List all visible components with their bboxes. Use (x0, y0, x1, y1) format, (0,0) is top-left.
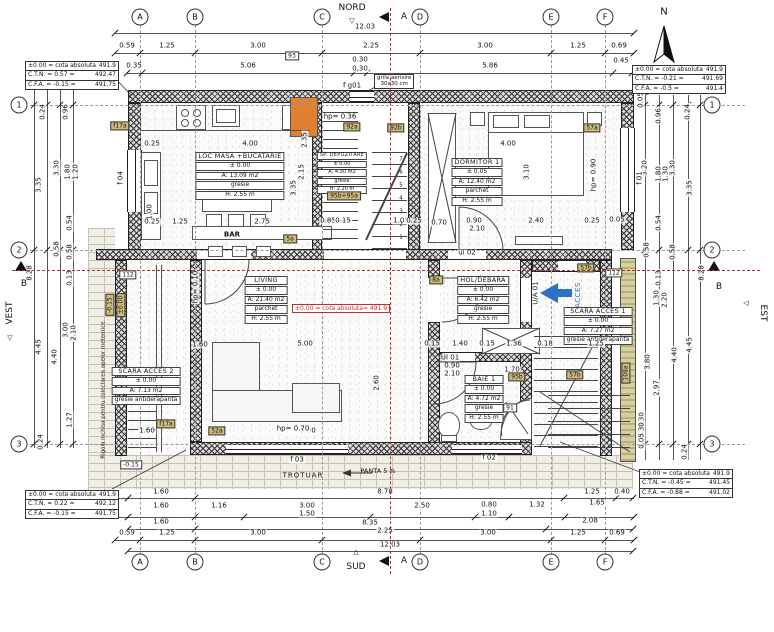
room-finish: gresie (457, 305, 509, 314)
room-height: H: 2.55 m (452, 197, 503, 206)
level-value: 491.45 (709, 479, 730, 487)
rigola-note: Rigola inchisa pentru colectarea apelor … (101, 320, 107, 459)
room-level: ± 0.00 (112, 377, 181, 386)
level-key: C.T.N. = -0.45 = (642, 479, 691, 487)
east-label: EST (758, 305, 768, 322)
red-level-note: ±0.00 = cota absoluta= 491.9 (292, 304, 390, 313)
grid-line-3 (30, 444, 745, 445)
level-value: 491.75 (95, 510, 116, 518)
room-label-storage: SP. DEPOZITARE ± 0.00 A: 4.30 m2 gresie … (317, 152, 367, 194)
room-height: H: 2.55 m (465, 414, 504, 423)
room-height: H: 2.55 m (457, 315, 509, 324)
room-name: SCARA ACCES 1 (564, 307, 633, 316)
dim-line (34, 88, 35, 448)
room-name: SCARA ACCES 2 (112, 367, 181, 376)
level-value: 491.9 (706, 66, 723, 74)
south-label: SUD (346, 562, 365, 572)
room-level: ± 0.00 (317, 161, 367, 169)
dim-line (645, 95, 646, 460)
south-triangle-icon: △ (353, 548, 358, 556)
grila-note: grila aerisire 30x30 cm (374, 74, 414, 89)
dim-line (700, 95, 701, 460)
room-height: H: 2.55 m (195, 191, 284, 200)
room-finish: gresie antiderapanta (112, 396, 181, 405)
room-label-kitchen: LOC MASA +BUCATARIE ± 0.00 A: 13.09 m2 g… (195, 152, 284, 200)
north-triangle-icon: ▽ (349, 17, 354, 25)
acces-arrow-tail (557, 289, 572, 297)
section-a-label-bottom: A (401, 556, 407, 566)
level-key: C.F.A. = -0.15 = (28, 81, 76, 89)
north-label: NORD (339, 3, 366, 13)
room-area: A: 7.27 m2 (564, 327, 633, 336)
level-key: ±0.00 = cota absoluta (642, 470, 710, 478)
room-area: A: 13.09 m2 (195, 172, 284, 181)
section-b-label-left: B (21, 279, 27, 289)
room-level: ± 0.00 (195, 162, 284, 171)
level-key: C.T.N. = 0.22 = (28, 500, 75, 508)
level-key: ±0.00 = cota absoluta (635, 66, 703, 74)
room-area: A: 7.13 m2 (112, 387, 181, 396)
level-key: ±0.00 = cota absoluta (28, 491, 96, 499)
west-triangle-icon: ▽ (7, 334, 12, 342)
room-name: SP. DEPOZITARE (317, 152, 367, 160)
room-area: A: 4.30 m2 (317, 169, 367, 177)
room-label-stair2: SCARA ACCES 2 ± 0.00 A: 7.13 m2 gresie a… (112, 367, 181, 405)
room-finish: gresie antiderapanta (564, 336, 633, 345)
room-area: A: 4.72 m2 (465, 395, 504, 404)
level-value: 491.9 (99, 491, 116, 499)
floor-plan-drawing: NORD ▽ △ SUD VEST ▽ EST ◁ N A A B B ±0.0… (0, 0, 774, 632)
room-label-bedroom: DORMITOR 1 ± 0.05 A: 12.40 m2 parchet H:… (452, 158, 503, 206)
level-value: 492.47 (95, 71, 116, 79)
room-finish: gresie (195, 181, 284, 190)
level-key: ±0.00 = cota absoluta (28, 62, 96, 70)
room-label-hall: HOL/DEBARA ± 0.00 A: 6.42 m2 gresie H: 2… (457, 276, 509, 324)
panta-label: PANTA 5 % (359, 468, 396, 475)
room-area: A: 6.42 m2 (457, 296, 509, 305)
dim-line (60, 88, 61, 448)
level-table-bottom-right: ±0.00 = cota absoluta491.9 C.T.N. = -0.4… (639, 469, 733, 498)
room-name: LIVING (245, 276, 288, 285)
trotuar-label: TROTUAR (282, 473, 325, 480)
grila-note-line2: 30x30 cm (377, 81, 411, 87)
section-line-a (390, 8, 391, 574)
level-value: 491.9 (713, 470, 730, 478)
grid-line-1 (30, 105, 745, 106)
level-key: C.T.N. = -0.21 = (635, 75, 684, 83)
room-finish: parchet (245, 305, 288, 314)
level-key: C.F.A. = -0.5 = (635, 85, 679, 93)
section-a-marker-bottom-icon (379, 556, 389, 566)
room-level: ± 0.00 (457, 286, 509, 295)
level-key: C.F.A. = -0.88 = (642, 489, 690, 497)
dim-line (47, 88, 48, 448)
dim-line (73, 88, 74, 448)
dim-line (659, 95, 660, 460)
room-height: H: 2.55 m (245, 315, 288, 324)
level-value: 491.4 (706, 85, 723, 93)
level-table-top-right: ±0.00 = cota absoluta491.9 C.T.N. = -0.2… (632, 65, 726, 94)
section-a-marker-top-icon (379, 12, 389, 22)
bar-label: BAR (223, 232, 241, 239)
acces-label: ACCES (574, 282, 582, 308)
dim-line (688, 95, 689, 460)
room-label-living: LIVING ± 0.00 A: 21.40 m2 parchet H: 2.5… (245, 276, 288, 324)
room-name: DORMITOR 1 (452, 158, 503, 167)
section-b-label-right: B (716, 282, 722, 292)
dim-line (128, 529, 633, 530)
acces-arrow-icon (540, 283, 558, 303)
leader-lines (112, 76, 689, 489)
level-value: 492.12 (95, 500, 116, 508)
dim-line (673, 95, 674, 460)
room-area: A: 12.40 m2 (452, 178, 503, 187)
room-finish: parchet (452, 187, 503, 196)
level-key: C.F.A. = -0.15 = (28, 510, 76, 518)
room-label-bath: BAIE 1 ± 0.00 A: 4.72 m2 gresie H: 2.55 … (465, 375, 504, 423)
dim-line (115, 33, 634, 34)
level-value: 491.02 (709, 489, 730, 497)
room-level: ± 0.00 (564, 317, 633, 326)
level-table-top-left: ±0.00 = cota absoluta491.9 C.T.N. = 0.57… (25, 61, 119, 90)
level-value: 491.69 (702, 75, 723, 83)
room-name: HOL/DEBARA (457, 276, 509, 285)
room-level: ± 0.05 (452, 168, 503, 177)
west-label: VEST (5, 301, 15, 324)
room-height: H: 2.20 m (317, 186, 367, 194)
east-triangle-icon: ◁ (743, 299, 748, 307)
room-name: LOC MASA +BUCATARIE (195, 152, 284, 161)
level-key: C.T.N. = 0.57 = (28, 71, 75, 79)
room-name: BAIE 1 (465, 375, 504, 384)
grid-line-2 (30, 250, 745, 251)
dim-line (128, 551, 633, 552)
room-level: ± 0.00 (465, 385, 504, 394)
room-label-stair1: SCARA ACCES 1 ± 0.00 A: 7.27 m2 gresie a… (564, 307, 633, 345)
room-finish: gresie (465, 404, 504, 413)
compass-n-label: N (660, 7, 667, 18)
room-finish: gresie (317, 178, 367, 186)
room-level: ± 0.00 (245, 286, 288, 295)
section-a-label-top: A (401, 12, 407, 22)
level-value: 491.75 (95, 81, 116, 89)
room-area: A: 21.40 m2 (245, 296, 288, 305)
level-table-bottom-left: ±0.00 = cota absoluta491.9 C.T.N. = 0.22… (25, 490, 119, 519)
north-arrow-icon (654, 26, 674, 62)
level-value: 491.9 (99, 62, 116, 70)
section-line-b (12, 270, 760, 271)
